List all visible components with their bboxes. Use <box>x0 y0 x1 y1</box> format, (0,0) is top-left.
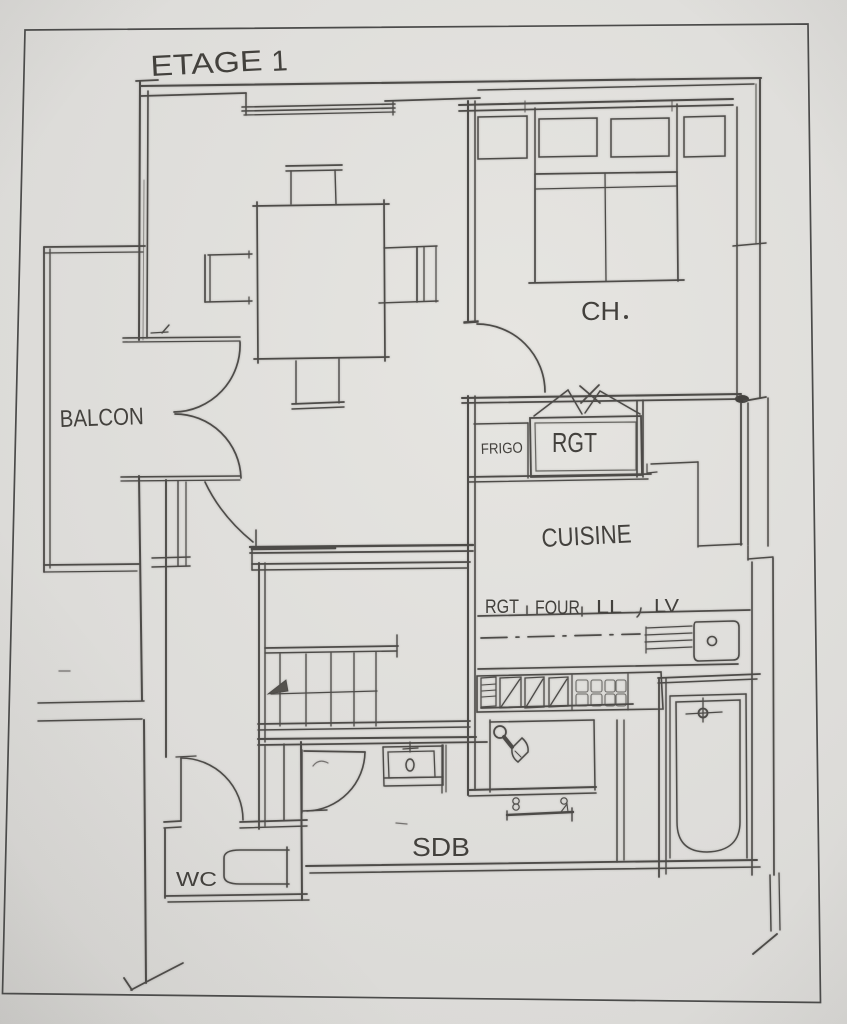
svg-text:SDB: SDB <box>412 832 470 862</box>
svg-text:LL: LL <box>596 597 622 617</box>
svg-text:LV: LV <box>654 596 679 616</box>
svg-text:WC: WC <box>176 869 217 891</box>
svg-text:FOUR: FOUR <box>535 598 580 619</box>
svg-text:CUISINE: CUISINE <box>541 518 632 553</box>
svg-text:RGT: RGT <box>552 427 597 458</box>
svg-text:CH: CH <box>581 296 620 326</box>
svg-text:BALCON: BALCON <box>59 403 144 433</box>
svg-text:RGT: RGT <box>485 597 519 618</box>
svg-text:FRIGO: FRIGO <box>481 440 524 458</box>
svg-text:ETAGE: ETAGE <box>150 45 264 83</box>
svg-text:1: 1 <box>271 45 289 78</box>
